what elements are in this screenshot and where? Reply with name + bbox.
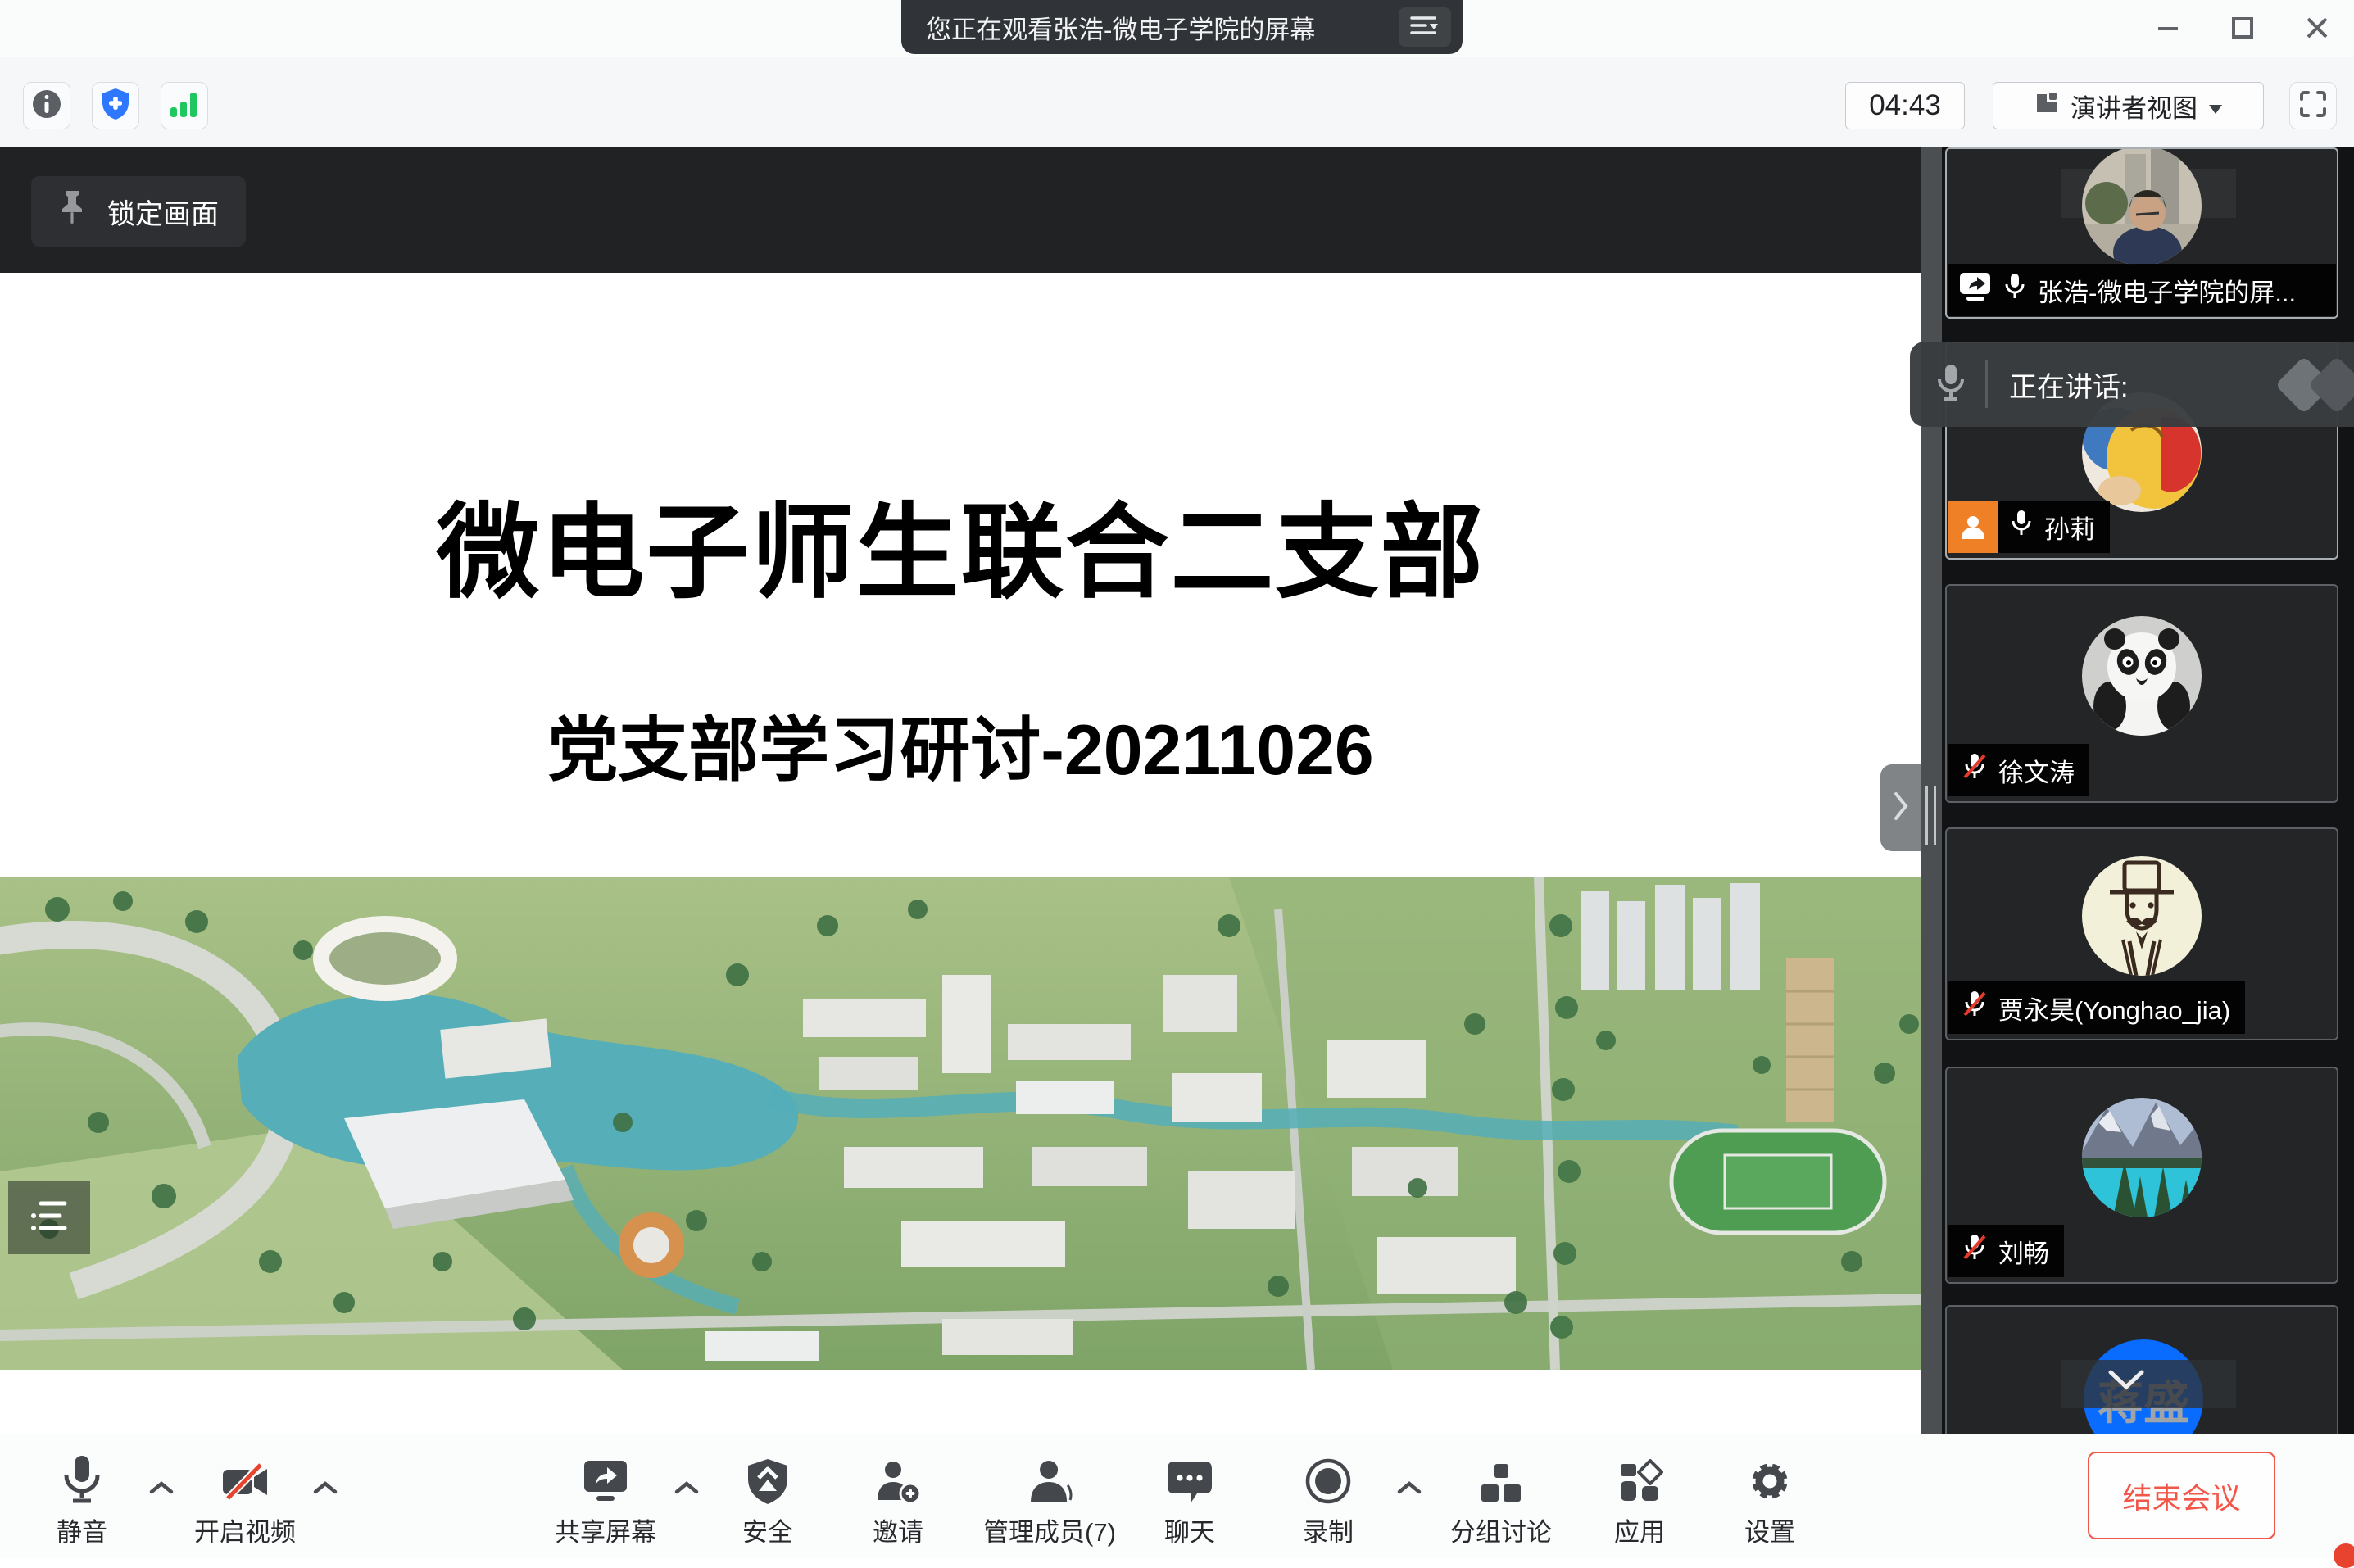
record-label: 录制 (1303, 1511, 1354, 1548)
now-speaking-banner: 正在讲话: (1910, 342, 2354, 427)
collapse-videos-button[interactable] (2107, 1369, 2145, 1394)
share-screen-button[interactable]: 共享屏幕 (555, 1454, 656, 1548)
screen-share-icon (1959, 272, 1992, 308)
meeting-logo-icon (2269, 353, 2354, 421)
participant-name-bar: 孙莉 (1948, 501, 2110, 553)
chevron-down-icon (2107, 1380, 2145, 1394)
slide-title: 微电子师生联合二支部 (0, 469, 1921, 619)
share-screen-label: 共享屏幕 (555, 1511, 656, 1548)
chevron-right-icon (1893, 791, 1909, 826)
gear-icon (1746, 1454, 1794, 1505)
avatar (2082, 616, 2202, 736)
main-area: 锁定画面 微电子师生联合二支部 党支部学习研讨-20211026 (0, 147, 2354, 1434)
participant-name: 刘畅 (1998, 1233, 2049, 1270)
apps-label: 应用 (1614, 1511, 1665, 1548)
mute-options-chevron[interactable] (148, 1480, 175, 1499)
chat-label: 聊天 (1164, 1511, 1215, 1548)
participant-name-bar: 张浩-微电子学院的屏... (1948, 264, 2336, 316)
lock-view-button[interactable]: 锁定画面 (31, 176, 246, 247)
participant-tile[interactable]: 刘畅 (1945, 1067, 2338, 1284)
avatar (2082, 1098, 2202, 1217)
record-options-chevron[interactable] (1396, 1480, 1422, 1499)
info-icon (31, 88, 62, 124)
participant-tile[interactable]: 贾永昊(Yonghao_jia) (1945, 827, 2338, 1040)
invite-button[interactable]: 邀请 (873, 1454, 923, 1548)
tile-hover-band (2061, 1360, 2236, 1408)
record-button[interactable]: 录制 (1303, 1454, 1354, 1548)
presentation-slide: 微电子师生联合二支部 党支部学习研讨-20211026 (0, 273, 1921, 1434)
sidebar-splitter[interactable] (1921, 147, 1942, 1434)
chat-button[interactable]: 聊天 (1164, 1454, 1215, 1548)
shield-plus-icon (100, 88, 131, 125)
manage-members-label: 管理成员(7) (983, 1511, 1116, 1548)
participant-name-bar: 刘畅 (1948, 1225, 2064, 1277)
start-video-label: 开启视频 (194, 1511, 296, 1548)
fullscreen-icon (2298, 89, 2328, 123)
signal-bars-icon (169, 89, 200, 123)
top-toolbar: 04:43 演讲者视图 (0, 57, 2354, 147)
view-mode-label: 演讲者视图 (2071, 88, 2198, 125)
share-options-chevron[interactable] (674, 1480, 700, 1499)
chevron-down-icon (2209, 91, 2222, 120)
settings-button[interactable]: 设置 (1744, 1454, 1795, 1548)
list-icon (30, 1199, 68, 1237)
breakout-rooms-button[interactable]: 分组讨论 (1450, 1454, 1552, 1548)
end-meeting-button[interactable]: 结束会议 (2088, 1452, 2275, 1539)
mute-label: 静音 (57, 1511, 107, 1548)
mic-muted-icon (1962, 753, 1987, 787)
apps-button[interactable]: 应用 (1614, 1454, 1665, 1548)
meeting-window: 您正在观看张浩-微电子学院的屏幕 04:43 (0, 0, 2354, 1558)
participant-name-bar: 贾永昊(Yonghao_jia) (1948, 981, 2245, 1034)
network-stats-button[interactable] (161, 82, 208, 129)
share-screen-icon (582, 1454, 629, 1505)
host-badge-icon (1948, 501, 1998, 553)
participant-name: 徐文涛 (1998, 752, 2075, 789)
hamburger-caret-icon (1409, 14, 1440, 41)
campus-aerial-image (0, 877, 1921, 1370)
chat-icon (1166, 1454, 1213, 1505)
mic-icon (59, 1454, 105, 1505)
breakout-rooms-label: 分组讨论 (1450, 1511, 1552, 1548)
participant-name: 贾永昊(Yonghao_jia) (1998, 990, 2230, 1026)
manage-members-button[interactable]: 管理成员(7) (983, 1454, 1116, 1548)
participant-tile[interactable]: 蒋盛 (1945, 1305, 2338, 1434)
sidebar-collapse-button[interactable] (1880, 764, 1921, 851)
mic-on-icon (2003, 273, 2026, 307)
banner-menu-button[interactable] (1399, 7, 1451, 47)
maximize-button[interactable] (2225, 11, 2261, 48)
lock-view-label: 锁定画面 (107, 192, 219, 232)
banner-divider (1985, 360, 1988, 408)
participant-name: 孙莉 (2044, 509, 2095, 546)
view-mode-selector[interactable]: 演讲者视图 (1993, 82, 2264, 129)
shared-screen-stage: 锁定画面 微电子师生联合二支部 党支部学习研讨-20211026 (0, 147, 1921, 1434)
slide-subtitle: 党支部学习研讨-20211026 (0, 692, 1921, 795)
security-label: 安全 (742, 1511, 793, 1548)
bottom-toolbar: 静音 开启视频 共享屏幕 安全 邀请 管理成员(7) 聊天 (0, 1434, 2354, 1558)
breakout-squares-icon (1479, 1454, 1523, 1505)
end-meeting-label: 结束会议 (2122, 1475, 2240, 1517)
video-options-chevron[interactable] (312, 1480, 338, 1499)
splitter-drag-handle (1925, 786, 1936, 845)
maximize-icon (2227, 12, 2258, 48)
watching-banner-text: 您正在观看张浩-微电子学院的屏幕 (926, 9, 1384, 46)
participant-tile[interactable]: 张浩-微电子学院的屏... (1945, 147, 2338, 319)
start-video-button[interactable]: 开启视频 (194, 1454, 296, 1548)
notification-dot (2334, 1543, 2354, 1568)
avatar (2082, 147, 2202, 265)
timer-value: 04:43 (1869, 89, 1941, 122)
person-icon (1027, 1454, 1073, 1505)
fullscreen-button[interactable] (2289, 82, 2337, 129)
participant-name-bar: 徐文涛 (1948, 744, 2089, 796)
mic-muted-icon (1962, 1234, 1987, 1268)
record-icon (1304, 1454, 1352, 1505)
avatar (2082, 856, 2202, 976)
security-shield-icon (745, 1454, 791, 1505)
now-speaking-label: 正在讲话: (2009, 365, 2128, 405)
minimize-icon (2152, 12, 2184, 48)
mute-button[interactable]: 静音 (57, 1454, 107, 1548)
mic-gray-icon (1934, 363, 1967, 406)
close-button[interactable] (2299, 11, 2335, 48)
slideshow-list-button[interactable] (8, 1181, 90, 1254)
invite-label: 邀请 (873, 1511, 923, 1548)
mic-muted-icon (1962, 990, 1987, 1025)
camera-off-icon (220, 1454, 270, 1505)
apps-grid-icon (1616, 1454, 1663, 1505)
person-plus-icon (874, 1454, 922, 1505)
titlebar: 您正在观看张浩-微电子学院的屏幕 (0, 0, 2354, 57)
participant-name: 张浩-微电子学院的屏... (2038, 272, 2296, 309)
watching-banner: 您正在观看张浩-微电子学院的屏幕 (901, 0, 1463, 54)
participant-tile[interactable]: 徐文涛 (1945, 584, 2338, 803)
meeting-info-button[interactable] (23, 82, 70, 129)
meeting-timer: 04:43 (1845, 82, 1965, 129)
layout-icon (2034, 90, 2059, 121)
mic-on-icon (2010, 510, 2033, 544)
minimize-button[interactable] (2150, 11, 2186, 48)
security-button[interactable]: 安全 (742, 1454, 793, 1548)
settings-label: 设置 (1744, 1511, 1795, 1548)
pushpin-icon (58, 190, 86, 233)
security-shield-button[interactable] (92, 82, 139, 129)
participants-sidebar: 张浩-微电子学院的屏... (1942, 147, 2354, 1434)
close-icon (2302, 12, 2333, 48)
